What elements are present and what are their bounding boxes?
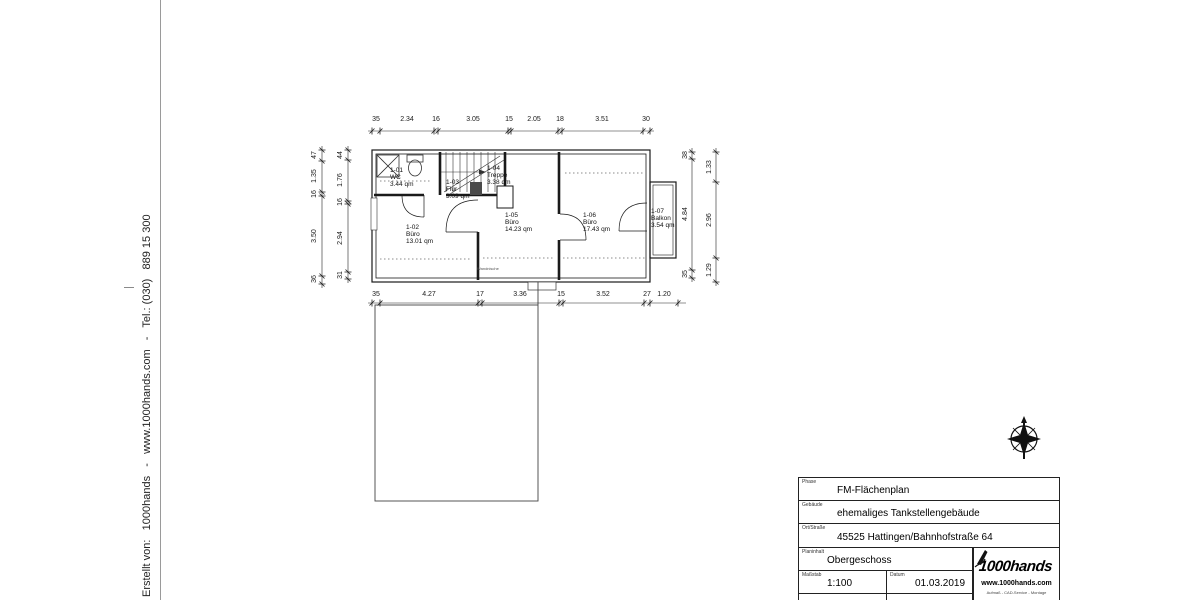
dim-value: 15: [557, 291, 565, 299]
dim-value: 2.94: [337, 231, 345, 245]
title-block-row-partial: [799, 594, 973, 600]
field-value: FM-Flächenplan: [837, 485, 909, 496]
title-block-row-ort: Ort/Straße 45525 Hattingen/Bahnhofstraße…: [799, 524, 1059, 548]
logo-tagline: Aufmaß - CAD-Service - Montage: [974, 590, 1059, 595]
dim-value: 31: [337, 271, 345, 279]
room-id: 1-03: [446, 179, 470, 186]
window-left: [371, 198, 377, 230]
field-value: 45525 Hattingen/Bahnhofstraße 64: [837, 532, 993, 543]
dim-value: 16: [337, 198, 345, 206]
logo-url: www.1000hands.com: [974, 580, 1059, 587]
dim-value: 3.52: [596, 291, 610, 299]
wall-niche: [528, 282, 556, 290]
dim-value: 1.20: [657, 291, 671, 299]
date-cell: Datum 01.03.2019: [887, 571, 973, 593]
room-area: 3.09 qm: [446, 193, 470, 200]
room-label-buero-102: 1-02 Büro 13.01 qm: [406, 224, 433, 245]
room-name: WC: [390, 174, 414, 181]
room-area: 3.38 qm: [487, 179, 511, 186]
chimney-block: [497, 186, 513, 208]
title-block-row-planinhalt: Planinhalt Obergeschoss: [799, 548, 973, 571]
scale-cell: Maßstab 1:100: [799, 571, 887, 593]
room-label-wc: 1-01 WC 3.44 qm: [390, 167, 414, 188]
room-area: 17.43 qm: [583, 226, 610, 233]
room-id: 1-01: [390, 167, 414, 174]
room-name: Büro: [505, 219, 532, 226]
title-block: Phase FM-Flächenplan Gebäude ehemaliges …: [798, 477, 1060, 600]
room-name: Balkon: [651, 215, 675, 222]
room-area: 13.01 qm: [406, 238, 433, 245]
field-value: Obergeschoss: [827, 555, 891, 566]
field-value: ehemaliges Tankstellengebäude: [837, 508, 980, 519]
room-name: Treppe: [487, 172, 511, 179]
room-label-flur: 1-03 Flur 3.09 qm: [446, 179, 470, 200]
dim-value: 16: [432, 116, 440, 124]
room-label-treppe: 1-04 Treppe 3.38 qm: [487, 165, 511, 186]
dim-value: 2.05: [527, 116, 541, 124]
title-block-row-scale-date: Maßstab 1:100 Datum 01.03.2019: [799, 571, 973, 594]
field-label: Phase: [802, 479, 816, 485]
dim-value: 1.35: [311, 169, 319, 183]
field-value: 1:100: [827, 578, 852, 589]
dim-value: 1.33: [706, 160, 714, 174]
title-block-row-gebaeude: Gebäude ehemaliges Tankstellengebäude: [799, 501, 1059, 524]
room-id: 1-05: [505, 212, 532, 219]
room-area: 3.44 qm: [390, 181, 414, 188]
dim-value: 1.76: [337, 173, 345, 187]
margin-divider-line: [160, 0, 161, 600]
dim-value: 1.29: [706, 263, 714, 277]
room-label-buero-105: 1-05 Büro 14.23 qm: [505, 212, 532, 233]
field-value: 01.03.2019: [915, 578, 965, 589]
wall-niche-note: Wandnische: [477, 266, 499, 271]
dim-value: 4.27: [422, 291, 436, 299]
partial-cell: [887, 594, 973, 600]
field-label: Planinhalt: [802, 549, 824, 555]
lower-footprint-outline: [375, 305, 538, 501]
title-block-row-phase: Phase FM-Flächenplan: [799, 478, 1059, 501]
dim-value: 4.84: [682, 207, 690, 221]
dim-value: 2.96: [706, 213, 714, 227]
room-name: Büro: [583, 219, 610, 226]
logo-cell: 1000hands www.1000hands.com Aufmaß - CAD…: [973, 548, 1059, 600]
dim-value: 38: [682, 151, 690, 159]
room-label-buero-106: 1-06 Büro 17.43 qm: [583, 212, 610, 233]
dim-value: 35: [372, 291, 380, 299]
partial-cell: [799, 594, 887, 600]
dim-value: 3.05: [466, 116, 480, 124]
dim-value: 17: [476, 291, 484, 299]
dim-value: 27: [643, 291, 651, 299]
north-arrow-icon: [1007, 416, 1041, 459]
dim-value: 3.50: [311, 229, 319, 243]
fold-mark: [124, 287, 134, 288]
room-label-balkon: 1-07 Balkon 3.54 qm: [651, 208, 675, 229]
room-name: Flur: [446, 186, 470, 193]
room-area: 14.23 qm: [505, 226, 532, 233]
dim-value: 16: [311, 190, 319, 198]
stairs-hatch: [470, 182, 482, 195]
dim-value: 30: [642, 116, 650, 124]
dim-value: 18: [556, 116, 564, 124]
dim-value: 3.51: [595, 116, 609, 124]
dim-value: 3.36: [513, 291, 527, 299]
field-label: Ort/Straße: [802, 525, 825, 531]
dim-value: 15: [505, 116, 513, 124]
dim-value: 2.34: [400, 116, 414, 124]
field-label: Gebäude: [802, 502, 823, 508]
drawing-sheet: Erstellt von: 1000hands - www.1000hands.…: [0, 0, 1200, 600]
dim-value: 36: [311, 275, 319, 283]
dim-value: 35: [682, 270, 690, 278]
dim-value: 44: [337, 151, 345, 159]
room-area: 3.54 qm: [651, 222, 675, 229]
field-label: Maßstab: [802, 572, 821, 578]
room-name: Büro: [406, 231, 433, 238]
room-id: 1-07: [651, 208, 675, 215]
field-label: Datum: [890, 572, 905, 578]
room-id: 1-02: [406, 224, 433, 231]
author-credit-text: Erstellt von: 1000hands - www.1000hands.…: [141, 107, 155, 597]
dim-value: 35: [372, 116, 380, 124]
dim-value: 47: [311, 151, 319, 159]
room-id: 1-04: [487, 165, 511, 172]
room-id: 1-06: [583, 212, 610, 219]
